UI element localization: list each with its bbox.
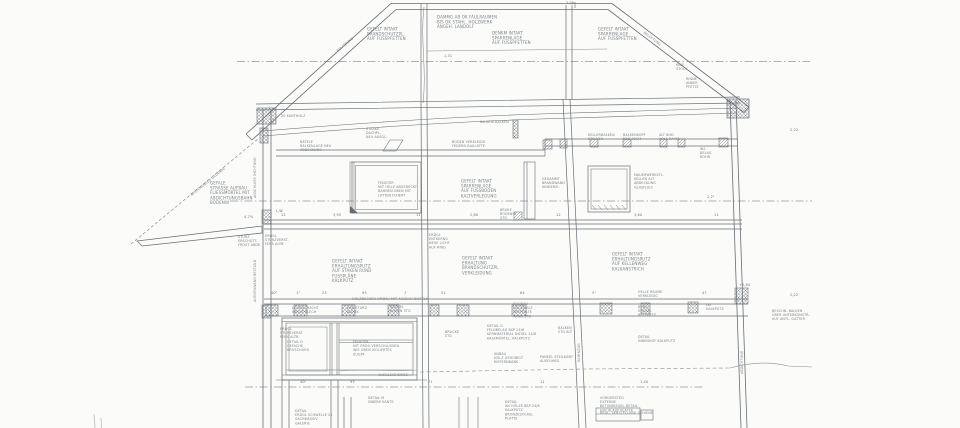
- beam-row-hatch-blocks: [266, 288, 748, 316]
- projection-diagonal: [131, 138, 259, 244]
- chimney-flues: [421, 4, 607, 106]
- attic-floor-slab: [256, 97, 740, 136]
- scanned-section-drawing: GEFELT INTAKT BRANDSCHUTZPL. AUF FUSSPFE…: [0, 0, 960, 428]
- ring-beam-hatch-blocks: [543, 138, 728, 149]
- beam-row: [264, 299, 748, 316]
- exterior-walls: [263, 100, 747, 428]
- center-post: [524, 162, 535, 219]
- mid-floor-hatch: [514, 212, 522, 220]
- drawing-linework: [0, 0, 960, 428]
- skewed-panel: [383, 140, 403, 151]
- canopy-wedge: [137, 226, 262, 246]
- scan-marks: [94, 414, 102, 428]
- upper-left-window: [350, 162, 421, 213]
- roof-envelope: [246, 2, 749, 140]
- interior-walls: [282, 99, 586, 428]
- upper-right-window: [588, 166, 630, 212]
- step-detail-box: [596, 408, 653, 421]
- mid-floor-slab: [264, 220, 742, 229]
- ring-beam-band: [276, 139, 737, 156]
